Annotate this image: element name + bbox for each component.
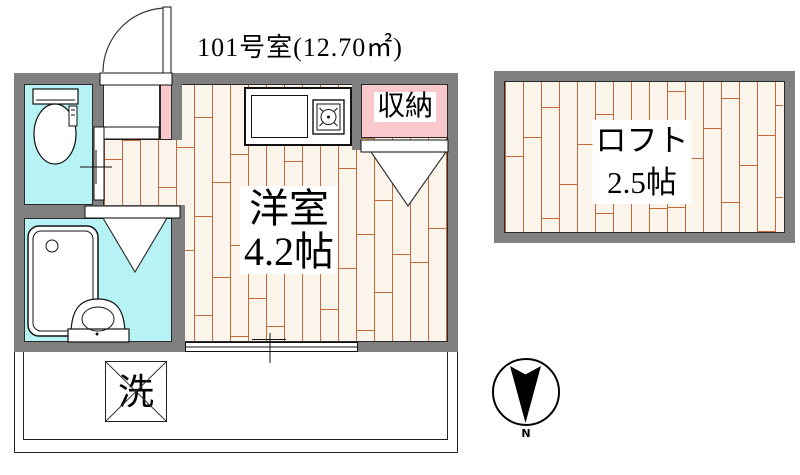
entrance-area [103, 84, 160, 140]
main-room-size: 4.2帖 [244, 230, 334, 273]
entrance-pink-strip [160, 84, 172, 140]
storage-label: 収納 [374, 92, 436, 122]
wall-bath-top [14, 205, 185, 218]
window-bottom [185, 342, 358, 352]
loft-size: 2.5帖 [596, 162, 689, 204]
loft-label: ロフト 2.5帖 [593, 120, 692, 204]
loft-name: ロフト [596, 120, 689, 162]
compass-circle [493, 359, 559, 425]
wall-bath-right [172, 218, 185, 342]
wall-entry-right [172, 84, 182, 140]
page-title: 101号室(12.70㎡) [175, 27, 425, 64]
main-room-label: 洋室 4.2帖 [240, 186, 338, 274]
bathroom [24, 218, 172, 342]
north-label: N [521, 427, 530, 440]
toilet-room [24, 84, 93, 205]
floorplan-canvas: 101号室(12.70㎡) 洗 [0, 0, 800, 475]
washer-label: 洗 [117, 374, 155, 410]
compass: N [493, 359, 559, 440]
washer-box: 洗 [105, 361, 167, 422]
wall-storage-left [352, 84, 361, 150]
main-room-name: 洋室 [244, 187, 334, 230]
north-arrow-icon [510, 366, 541, 423]
kitchen-sink [251, 95, 308, 138]
porch-outline-inner [23, 352, 448, 440]
